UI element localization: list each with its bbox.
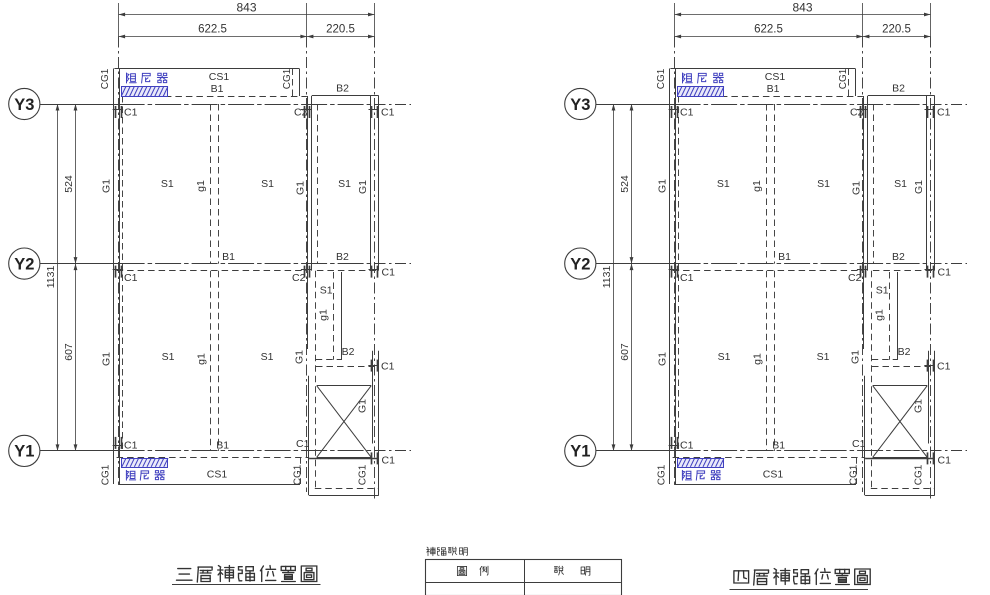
svg-text:CG1: CG1 bbox=[101, 464, 112, 485]
svg-text:C1: C1 bbox=[937, 107, 951, 119]
svg-text:G1: G1 bbox=[101, 352, 113, 366]
svg-text:C2: C2 bbox=[292, 272, 306, 284]
svg-text:C1: C1 bbox=[382, 455, 396, 467]
svg-text:220.5: 220.5 bbox=[882, 24, 911, 36]
svg-text:S1: S1 bbox=[894, 178, 907, 190]
svg-text:CG1: CG1 bbox=[100, 68, 111, 89]
svg-text:S1: S1 bbox=[161, 178, 174, 190]
svg-text:S1: S1 bbox=[718, 351, 731, 363]
svg-text:Y1: Y1 bbox=[14, 443, 34, 461]
svg-text:B1: B1 bbox=[772, 440, 785, 452]
svg-text:524: 524 bbox=[63, 175, 75, 193]
svg-text:CG1: CG1 bbox=[293, 464, 304, 485]
svg-text:B1: B1 bbox=[216, 440, 229, 452]
svg-text:S1: S1 bbox=[717, 178, 730, 190]
svg-text:CG1: CG1 bbox=[914, 464, 925, 485]
svg-text:B2: B2 bbox=[892, 83, 905, 95]
svg-text:CG1: CG1 bbox=[656, 68, 667, 89]
svg-text:622.5: 622.5 bbox=[198, 24, 227, 36]
svg-text:CG1: CG1 bbox=[838, 68, 849, 89]
svg-text:S1: S1 bbox=[817, 178, 830, 190]
svg-text:B2: B2 bbox=[336, 83, 349, 95]
svg-text:S1: S1 bbox=[320, 285, 333, 297]
svg-text:C2: C2 bbox=[850, 107, 864, 119]
svg-text:G1: G1 bbox=[850, 350, 862, 364]
svg-text:C1: C1 bbox=[938, 267, 952, 279]
svg-text:Y3: Y3 bbox=[14, 96, 34, 114]
svg-text:S1: S1 bbox=[817, 351, 830, 363]
svg-text:CS1: CS1 bbox=[763, 469, 784, 481]
svg-text:524: 524 bbox=[619, 175, 631, 193]
svg-text:CS1: CS1 bbox=[207, 469, 228, 481]
svg-text:CG1: CG1 bbox=[358, 464, 369, 485]
svg-text:C1: C1 bbox=[680, 440, 694, 452]
svg-text:CG1: CG1 bbox=[849, 464, 860, 485]
svg-text:C2: C2 bbox=[848, 272, 862, 284]
svg-text:CS1: CS1 bbox=[209, 71, 230, 83]
svg-text:g1: g1 bbox=[195, 180, 207, 192]
svg-text:607: 607 bbox=[619, 343, 631, 361]
svg-text:G1: G1 bbox=[357, 180, 369, 194]
svg-text:g1: g1 bbox=[874, 309, 886, 321]
svg-text:g1: g1 bbox=[196, 353, 208, 365]
svg-text:C1: C1 bbox=[124, 440, 138, 452]
svg-text:B2: B2 bbox=[892, 251, 905, 263]
svg-text:Y3: Y3 bbox=[570, 96, 590, 114]
svg-text:S1: S1 bbox=[162, 351, 175, 363]
svg-text:B1: B1 bbox=[211, 83, 224, 95]
svg-text:C1: C1 bbox=[680, 272, 694, 284]
svg-text:843: 843 bbox=[792, 1, 812, 15]
svg-text:G1: G1 bbox=[357, 399, 369, 413]
svg-text:220.5: 220.5 bbox=[326, 24, 355, 36]
svg-text:B2: B2 bbox=[342, 346, 355, 358]
svg-text:G1: G1 bbox=[913, 399, 925, 413]
svg-text:G1: G1 bbox=[913, 180, 925, 194]
svg-text:C2: C2 bbox=[294, 107, 308, 119]
svg-text:Y2: Y2 bbox=[14, 255, 34, 273]
svg-text:G1: G1 bbox=[851, 181, 863, 195]
svg-text:C1: C1 bbox=[124, 107, 138, 119]
svg-text:C1: C1 bbox=[937, 361, 951, 373]
svg-text:Y2: Y2 bbox=[570, 255, 590, 273]
svg-text:1131: 1131 bbox=[601, 266, 613, 289]
svg-text:g1: g1 bbox=[318, 309, 330, 321]
svg-text:CG1: CG1 bbox=[657, 464, 668, 485]
svg-text:C1: C1 bbox=[852, 438, 866, 450]
svg-text:Y1: Y1 bbox=[570, 443, 590, 461]
svg-text:G1: G1 bbox=[657, 352, 669, 366]
svg-text:B2: B2 bbox=[336, 251, 349, 263]
svg-text:S1: S1 bbox=[261, 351, 274, 363]
svg-text:B1: B1 bbox=[767, 83, 780, 95]
svg-text:CG1: CG1 bbox=[282, 68, 293, 89]
svg-text:S1: S1 bbox=[876, 285, 889, 297]
svg-text:g1: g1 bbox=[752, 353, 764, 365]
svg-text:G1: G1 bbox=[101, 179, 113, 193]
svg-text:S1: S1 bbox=[261, 178, 274, 190]
svg-text:C1: C1 bbox=[124, 272, 138, 284]
svg-text:1131: 1131 bbox=[45, 266, 57, 289]
svg-text:607: 607 bbox=[63, 343, 75, 361]
svg-text:C1: C1 bbox=[938, 455, 952, 467]
svg-text:g1: g1 bbox=[751, 180, 763, 192]
svg-text:CS1: CS1 bbox=[765, 71, 786, 83]
svg-text:C1: C1 bbox=[381, 361, 395, 373]
svg-text:G1: G1 bbox=[657, 179, 669, 193]
svg-text:622.5: 622.5 bbox=[754, 24, 783, 36]
svg-text:C1: C1 bbox=[296, 438, 310, 450]
svg-text:S1: S1 bbox=[338, 178, 351, 190]
svg-text:843: 843 bbox=[236, 1, 256, 15]
svg-text:C1: C1 bbox=[381, 107, 395, 119]
svg-text:G1: G1 bbox=[294, 350, 306, 364]
svg-text:C1: C1 bbox=[680, 107, 694, 119]
svg-text:G1: G1 bbox=[295, 181, 307, 195]
svg-text:B2: B2 bbox=[898, 346, 911, 358]
svg-text:B1: B1 bbox=[222, 251, 235, 263]
svg-text:B1: B1 bbox=[778, 251, 791, 263]
svg-text:C1: C1 bbox=[382, 267, 396, 279]
